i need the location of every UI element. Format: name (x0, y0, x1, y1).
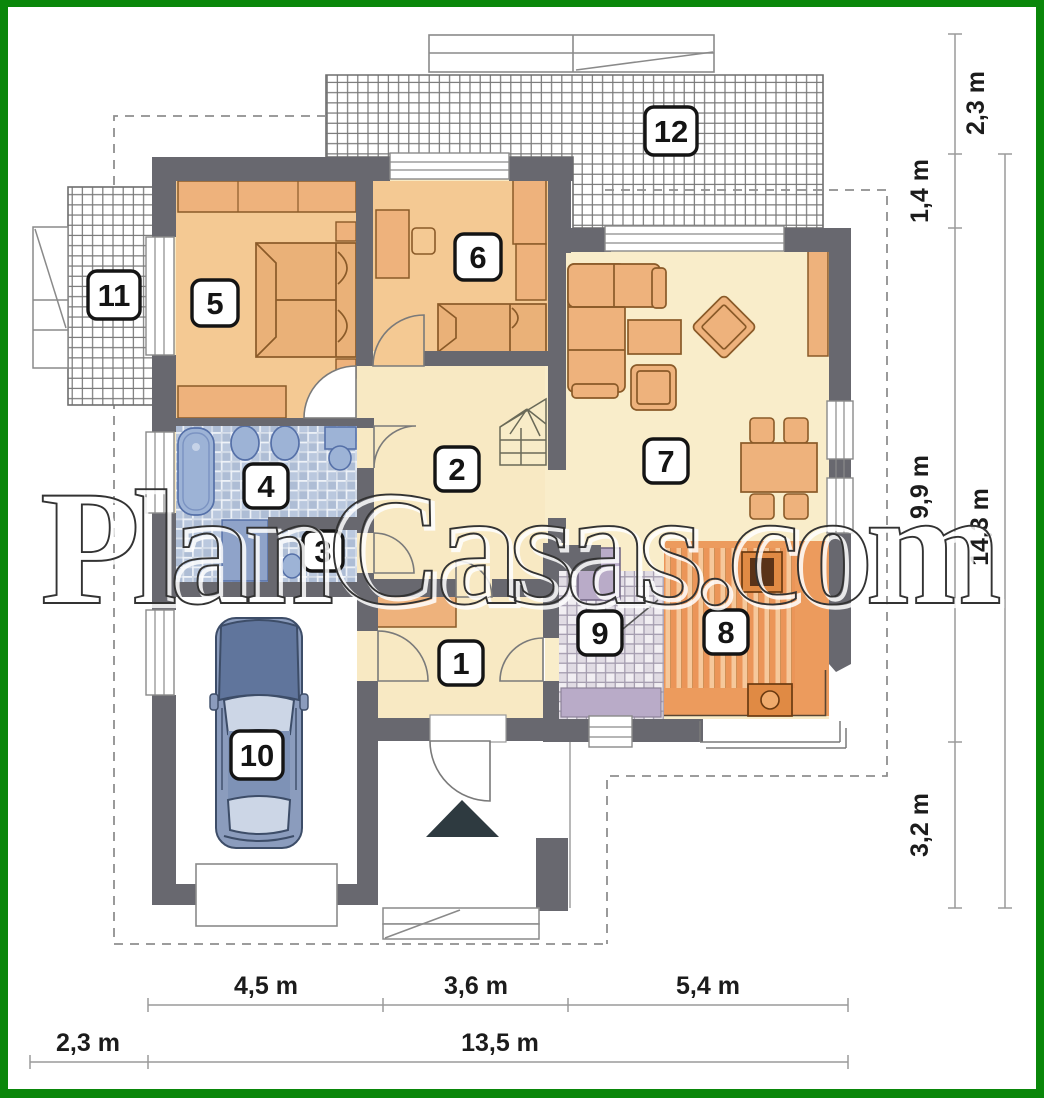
svg-text:12: 12 (654, 114, 688, 149)
svg-text:5,4 m: 5,4 m (676, 972, 740, 1000)
svg-text:1,4 m: 1,4 m (906, 159, 934, 223)
svg-text:11: 11 (98, 278, 131, 313)
svg-text:4,5 m: 4,5 m (234, 972, 298, 1000)
svg-text:2,3 m: 2,3 m (962, 71, 990, 135)
svg-text:3,6 m: 3,6 m (444, 972, 508, 1000)
svg-text:2,3 m: 2,3 m (56, 1029, 120, 1057)
svg-text:10: 10 (240, 738, 274, 773)
svg-text:6: 6 (469, 240, 486, 275)
svg-text:PlanCasas.com: PlanCasas.com (40, 458, 1002, 639)
svg-text:3,2 m: 3,2 m (906, 793, 934, 857)
svg-text:5: 5 (206, 286, 223, 321)
svg-text:1: 1 (452, 646, 469, 681)
svg-text:13,5 m: 13,5 m (461, 1029, 539, 1057)
